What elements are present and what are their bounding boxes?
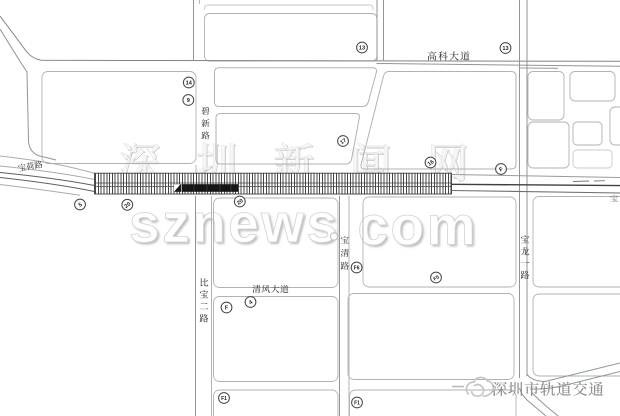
svg-text:F: F: [225, 306, 229, 312]
svg-text:9: 9: [187, 98, 190, 104]
svg-text:F6: F6: [354, 266, 360, 272]
svg-text:13: 13: [359, 46, 365, 52]
svg-text:F1: F1: [354, 401, 360, 407]
svg-text:F1: F1: [221, 396, 227, 402]
svg-text:13: 13: [502, 46, 508, 52]
svg-text:14: 14: [186, 81, 193, 87]
svg-text:sznews com: sznews com: [129, 192, 478, 257]
